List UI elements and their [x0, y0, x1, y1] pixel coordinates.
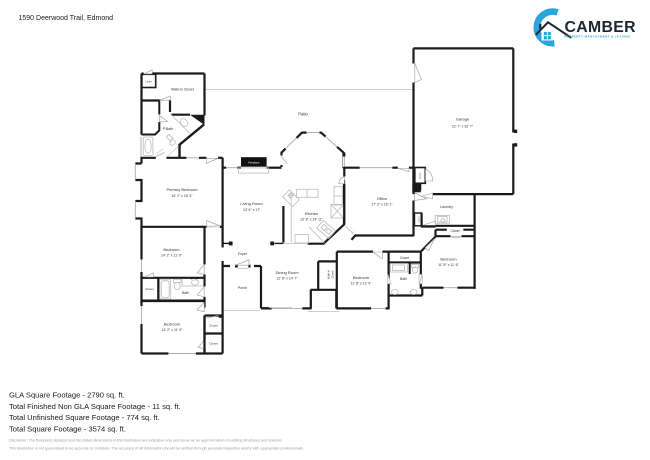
svg-text:P.Bath: P.Bath — [163, 127, 173, 131]
svg-text:Bedroom: Bedroom — [440, 256, 457, 261]
svg-text:Closet: Closet — [209, 342, 218, 346]
svg-text:Closet: Closet — [331, 270, 335, 278]
svg-text:Living Room: Living Room — [240, 201, 263, 206]
svg-text:Bath: Bath — [400, 277, 407, 281]
svg-text:Garage: Garage — [456, 117, 470, 122]
svg-text:Bedroom: Bedroom — [163, 247, 180, 252]
svg-text:Fireplace: Fireplace — [248, 161, 260, 165]
svg-text:Disclaimer: The floorplans dep: Disclaimer: The floorplans depicted and … — [9, 439, 283, 443]
svg-text:Bedroom: Bedroom — [164, 322, 181, 327]
svg-text:11' 8" x 12' 9": 11' 8" x 12' 9" — [351, 282, 373, 286]
svg-text:12' 8" x 14' 7": 12' 8" x 14' 7" — [276, 277, 298, 281]
svg-text:13' 6" x 17': 13' 6" x 17' — [243, 208, 260, 212]
svg-text:Office: Office — [377, 196, 388, 201]
svg-text:Porch: Porch — [238, 286, 247, 290]
svg-text:Total Unfinished Square Footag: Total Unfinished Square Footage - 774 sq… — [9, 413, 160, 422]
svg-text:CAMBER: CAMBER — [565, 19, 637, 36]
svg-text:Closet: Closet — [450, 229, 459, 233]
svg-text:14' 2" x 11' 9": 14' 2" x 11' 9" — [162, 328, 184, 332]
svg-text:Walk-In Closet: Walk-In Closet — [171, 87, 194, 91]
svg-text:Total Square Footage - 3574 sq: Total Square Footage - 3574 sq. ft. — [9, 424, 126, 433]
svg-text:Closet: Closet — [145, 287, 154, 291]
svg-text:22' 7" x 32' 7": 22' 7" x 32' 7" — [452, 125, 474, 129]
svg-text:Closet: Closet — [419, 173, 422, 180]
svg-text:14' 2" x 11' 0": 14' 2" x 11' 0" — [161, 254, 183, 258]
svg-text:Closet: Closet — [400, 256, 409, 260]
svg-text:PROPERTY MANAGEMENT & LEASING: PROPERTY MANAGEMENT & LEASING — [564, 35, 631, 39]
svg-text:Linen: Linen — [146, 80, 153, 84]
svg-text:Kitchen: Kitchen — [305, 211, 318, 216]
svg-text:11' 8" x 11' 6": 11' 8" x 11' 6" — [438, 263, 459, 267]
svg-text:17' 2" x 16' 1": 17' 2" x 16' 1" — [371, 203, 393, 207]
svg-text:This illustration is not guara: This illustration is not guaranteed to b… — [9, 447, 304, 451]
svg-text:Patio: Patio — [298, 112, 308, 117]
svg-text:13' 8" x 24' 11": 13' 8" x 24' 11" — [300, 218, 324, 222]
svg-text:Closet: Closet — [209, 324, 218, 328]
svg-text:Laundry: Laundry — [440, 205, 453, 209]
svg-text:Closet: Closet — [417, 216, 420, 222]
svg-text:Bath: Bath — [182, 291, 189, 295]
svg-text:GLA Square Footage - 2790 sq.: GLA Square Footage - 2790 sq. ft. — [9, 391, 125, 400]
svg-text:16' 2" x 15' 3": 16' 2" x 15' 3" — [171, 194, 193, 198]
svg-text:Bedroom: Bedroom — [353, 275, 370, 280]
svg-text:Primary Bedroom: Primary Bedroom — [166, 187, 198, 192]
svg-text:Dining Room: Dining Room — [275, 270, 299, 275]
svg-text:Foyer: Foyer — [238, 252, 248, 256]
svg-text:Total Finished Non GLA Square: Total Finished Non GLA Square Footage - … — [9, 402, 181, 411]
svg-text:1590 Deerwood Trail, Edmond: 1590 Deerwood Trail, Edmond — [19, 15, 114, 22]
